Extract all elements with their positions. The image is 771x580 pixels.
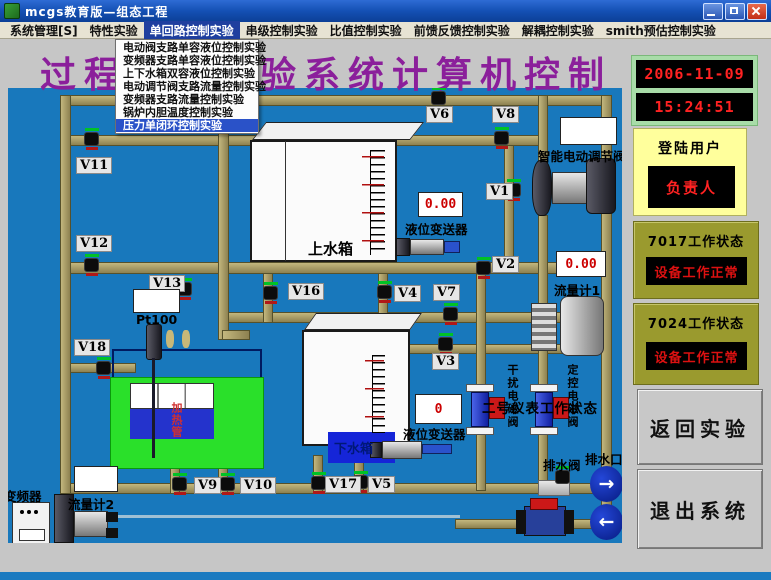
valve-indicator [86,147,98,150]
diagram-label-上水箱: 上水箱 [308,238,353,259]
diagram-label-下水箱: 下水箱 [334,438,373,457]
diagram-label-智能电动调节阀: 智能电动调节阀 [538,146,622,165]
valve-indicator [432,88,446,90]
valve-label-V18: V18 [74,339,110,356]
valve-label-V6: V6 [426,106,453,123]
valve-body-icon [263,286,278,300]
valve-indicator [444,303,458,306]
valve-label-V8: V8 [492,106,519,123]
valve-indicator [179,297,191,300]
exit-system-button[interactable]: 退出系统 [637,469,763,549]
level-transmitter-1-tip [444,241,460,253]
valve-body-icon [476,261,491,275]
electrode-pin [166,330,174,348]
valve-body-icon [84,258,99,272]
diagram-label-排水阀: 排水阀 [543,455,581,474]
menu-item-系统管理[S][interactable]: 系统管理[S] [4,21,84,40]
flow1-display: 0.00 [556,251,606,277]
valve-indicator [86,273,98,276]
valve-body-icon [96,361,111,375]
flow2-display [74,466,118,492]
valve-indicator [495,127,509,130]
pump-2-flange [516,510,526,534]
valve-body-icon [443,307,458,321]
valve-body-icon [438,337,453,351]
login-panel: 登陆用户 负责人 [633,128,747,216]
lower-tank [302,330,410,446]
valve-indicator [312,472,326,475]
valve-V11[interactable] [84,128,99,150]
status-7024-value: 设备工作正常 [646,342,747,370]
dropdown-item-变频器支路流量控制实验[interactable]: 变频器支路流量控制实验 [116,93,258,106]
drain-out-icon: → [590,466,622,502]
regulating-valve-body [552,172,588,204]
regulating-valve-motor [586,158,616,214]
valve-label-V17: V17 [325,476,361,493]
maximize-button[interactable] [725,3,745,20]
solenoid-1-flange [466,384,494,392]
diagram-label-液位变送器: 液位变送器 [403,424,466,443]
valve-V4[interactable] [377,281,392,303]
pipe-segment [504,145,514,273]
inverter-dots [20,510,24,514]
valve-indicator [439,333,453,336]
temp-display [133,289,180,313]
status-7017-value: 设备工作正常 [646,257,747,285]
valve-indicator [85,254,99,257]
thin-pipe [100,515,460,518]
valve-V2[interactable] [476,257,491,279]
level-transmitter-1-body [410,239,444,255]
close-button[interactable] [747,3,767,20]
valve-label-V4: V4 [394,285,421,302]
dropdown-item-变频器支路单容液位控制实验[interactable]: 变频器支路单容液位控制实验 [116,54,258,67]
pipe-segment [538,215,548,491]
valve-indicator [478,276,490,279]
valve-V12[interactable] [84,254,99,276]
pipe-segment [60,262,612,274]
diagram-label-排水口: 排水口 [585,449,622,468]
pump-1 [74,511,108,537]
valve-indicator [507,179,521,182]
upper-tank-top [252,122,424,140]
valve-body-icon [172,477,187,491]
valve-indicator [97,357,111,360]
valve-label-V1: V1 [486,183,513,200]
pipe-segment [222,330,250,340]
valve-body-icon [220,477,235,491]
valve-label-V2: V2 [492,256,519,273]
valve-label-V9: V9 [194,477,221,494]
valve-V10[interactable] [220,473,235,495]
diagram-label-二号仪表工作状态: 二号仪表工作状态 [482,397,598,417]
valve-indicator [477,257,491,260]
valve-indicator [98,376,110,379]
time-display: 15:24:51 [636,93,753,121]
valve-body-icon [431,91,446,105]
valve-label-V12: V12 [76,235,112,252]
valve-body-icon [84,132,99,146]
valve-body-icon [311,476,326,490]
valve-indicator [174,492,186,495]
valve-indicator [496,146,508,149]
status-panel-7024: 7024工作状态 设备工作正常 [633,303,759,385]
valve-V7[interactable] [443,303,458,325]
level-transmitter-2-body [382,441,422,459]
valve-label-V10: V10 [240,477,276,494]
minimize-button[interactable] [703,3,723,20]
valve-indicator [379,300,391,303]
flow-meter-1 [531,303,557,351]
pt100-rod [152,358,155,458]
diagram-label-变频器: 变频器 [8,486,42,505]
valve-indicator [85,128,99,131]
solenoid-2-flange [530,427,558,435]
valve-indicator [313,491,325,494]
valve-indicator [222,492,234,495]
pump-2-flange [564,510,574,534]
status-panel-7017: 7017工作状态 设备工作正常 [633,221,759,299]
valve-indicator [221,473,235,476]
mcgs-window: mcgs教育版—组态工程 系统管理[S]特性实验单回路控制实验串级控制实验比值控… [0,0,771,580]
process-diagram: → ← V6V8V11V1V12V2V13V16V4V7V18V3V9V10V1… [8,88,622,543]
menu-item-前馈反馈控制实验[interactable]: 前馈反馈控制实验 [408,21,516,40]
diagram-label-流量计2: 流量计2 [68,494,114,513]
valve-label-V7: V7 [433,284,460,301]
inverter-device [12,502,50,543]
bottom-strip [0,572,771,580]
upper-level-display: 0.00 [418,192,463,217]
return-experiment-button[interactable]: 返回实验 [637,389,763,465]
status-7017-title: 7017工作状态 [634,231,758,250]
date-display: 2006-11-09 [636,60,753,88]
valve-label-V16: V16 [288,283,324,300]
valve-body-icon [494,131,509,145]
level-transmitter-2-tip [422,444,452,454]
flow-meter-1-valve [560,296,604,356]
pump-1-port [106,528,118,538]
login-title: 登陆用户 [634,138,746,158]
diagram-label-液位变送器: 液位变送器 [405,219,468,238]
pump-1-port [106,512,118,522]
valve-V9[interactable] [172,473,187,495]
solenoid-1-flange [466,427,494,435]
valve-V16[interactable] [263,282,278,304]
electrode-pin [182,330,190,348]
valve-label-V5: V5 [368,476,395,493]
valve-display [560,117,617,145]
pipe-segment [60,95,71,494]
valve-label-V11: V11 [76,157,112,174]
drain-in-icon: ← [590,504,622,540]
pump-2 [524,506,566,536]
valve-indicator [173,473,187,476]
menu-item-解耦控制实验[interactable]: 解耦控制实验 [516,21,600,40]
valve-V3[interactable] [438,333,453,355]
inverter-slot [19,529,45,541]
dropdown-item-锅炉内胆温度控制实验[interactable]: 锅炉内胆温度控制实验 [116,106,258,119]
valve-V17[interactable] [311,472,326,494]
menu-item-比值控制实验[interactable]: 比值控制实验 [324,21,408,40]
dropdown-item-压力单闭环控制实验[interactable]: 压力单闭环控制实验 [116,119,258,132]
valve-indicator [264,282,278,285]
menu-item-特性实验[interactable]: 特性实验 [84,21,144,40]
diagram-label-Pt100: Pt100 [136,312,177,327]
menu-item-单回路控制实验[interactable]: 单回路控制实验 [144,21,240,40]
clock-panel: 2006-11-09 15:24:51 [631,55,758,126]
upper-tank-scale-red [362,156,384,251]
valve-indicator [445,322,457,325]
pipe-segment [476,273,486,491]
login-user-display: 负责人 [648,166,735,208]
title-bar: mcgs教育版—组态工程 [0,0,771,22]
valve-indicator [265,301,277,304]
lower-tank-top [304,313,422,330]
valve-indicator [354,471,368,474]
pt100-sensor [146,324,162,360]
app-icon [4,3,20,19]
valve-body-icon [377,285,392,299]
dropdown-menu: 电动阀支路单容液位控制实验变频器支路单容液位控制实验上下水箱双容液位控制实验电动… [115,39,259,134]
status-7024-title: 7024工作状态 [634,313,758,332]
menu-bar: 系统管理[S]特性实验单回路控制实验串级控制实验比值控制实验前馈反馈控制实验解耦… [0,22,771,39]
regulating-valve-flange [532,160,552,216]
pump-2-top [530,498,558,510]
valve-V8[interactable] [494,127,509,149]
window-title: mcgs教育版—组态工程 [25,3,703,20]
diagram-label-流量计1: 流量计1 [554,280,600,299]
valve-label-V3: V3 [432,353,459,370]
solenoid-2-flange [530,384,558,392]
valve-V18[interactable] [96,357,111,379]
upper-tank-divider [285,141,286,261]
lower-level-display: 0 [415,394,462,424]
menu-item-串级控制实验[interactable]: 串级控制实验 [240,21,324,40]
lower-tank-scale-red [365,360,384,430]
menu-item-smith预估控制实验[interactable]: smith预估控制实验 [600,21,722,40]
diagram-label-加热管: 加热管 [168,402,184,438]
dropdown-item-电动调节阀支路流量控制实验[interactable]: 电动调节阀支路流量控制实验 [116,80,258,93]
valve-indicator [378,281,392,284]
dropdown-item-上下水箱双容液位控制实验[interactable]: 上下水箱双容液位控制实验 [116,67,258,80]
level-transmitter-1 [396,238,410,256]
dropdown-item-电动阀支路单容液位控制实验[interactable]: 电动阀支路单容液位控制实验 [116,41,258,54]
